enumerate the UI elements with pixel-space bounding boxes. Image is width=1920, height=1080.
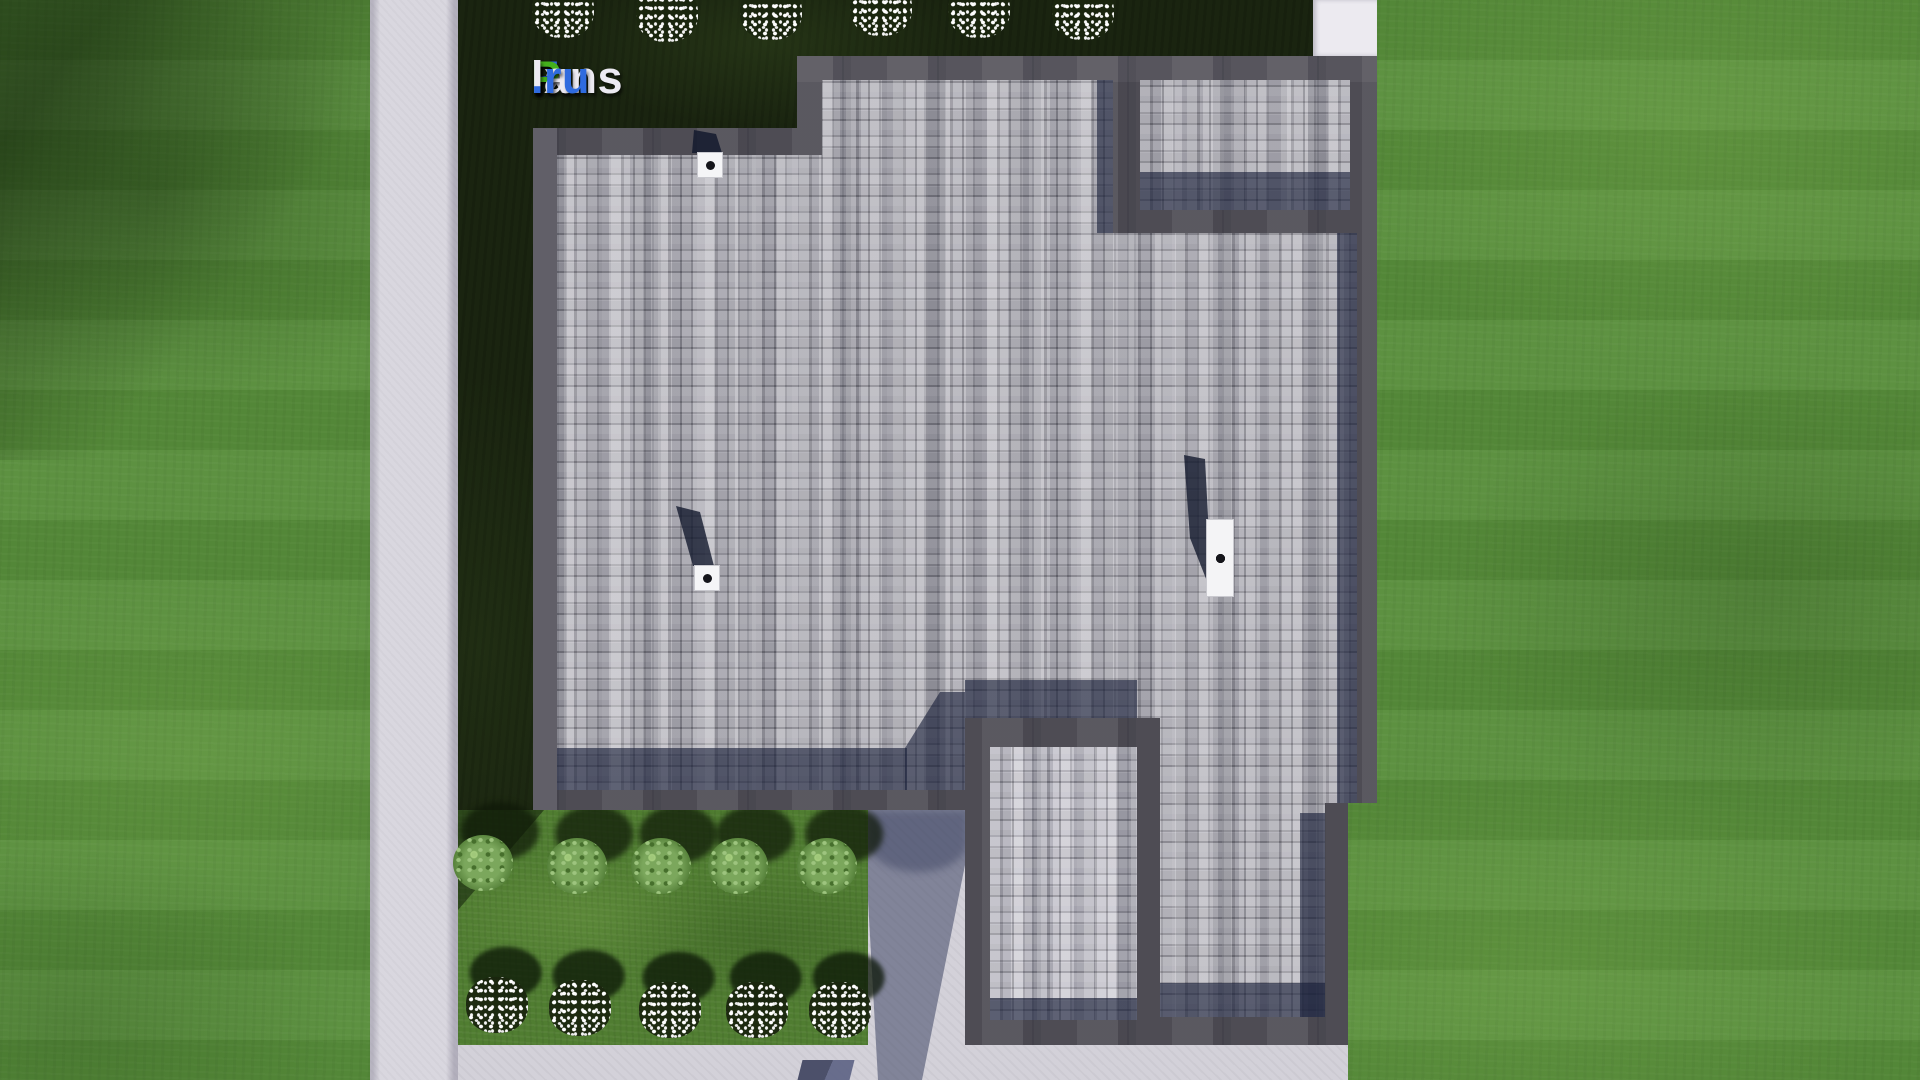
render-canvas: FixPlans.ru: [0, 0, 1920, 1080]
flower-cluster: [809, 982, 871, 1038]
chimney: [1206, 519, 1234, 597]
roof-vent: [697, 152, 723, 178]
roof-vent: [694, 565, 720, 591]
flower-cluster: [549, 980, 611, 1036]
vent-hole: [703, 574, 712, 583]
logo-segment: .ru: [531, 58, 590, 98]
flower-cluster: [639, 982, 701, 1038]
flower-cluster: [466, 977, 528, 1033]
vent-hole: [706, 161, 715, 170]
flower-cluster: [726, 982, 788, 1038]
chimney-flue: [1216, 554, 1225, 563]
